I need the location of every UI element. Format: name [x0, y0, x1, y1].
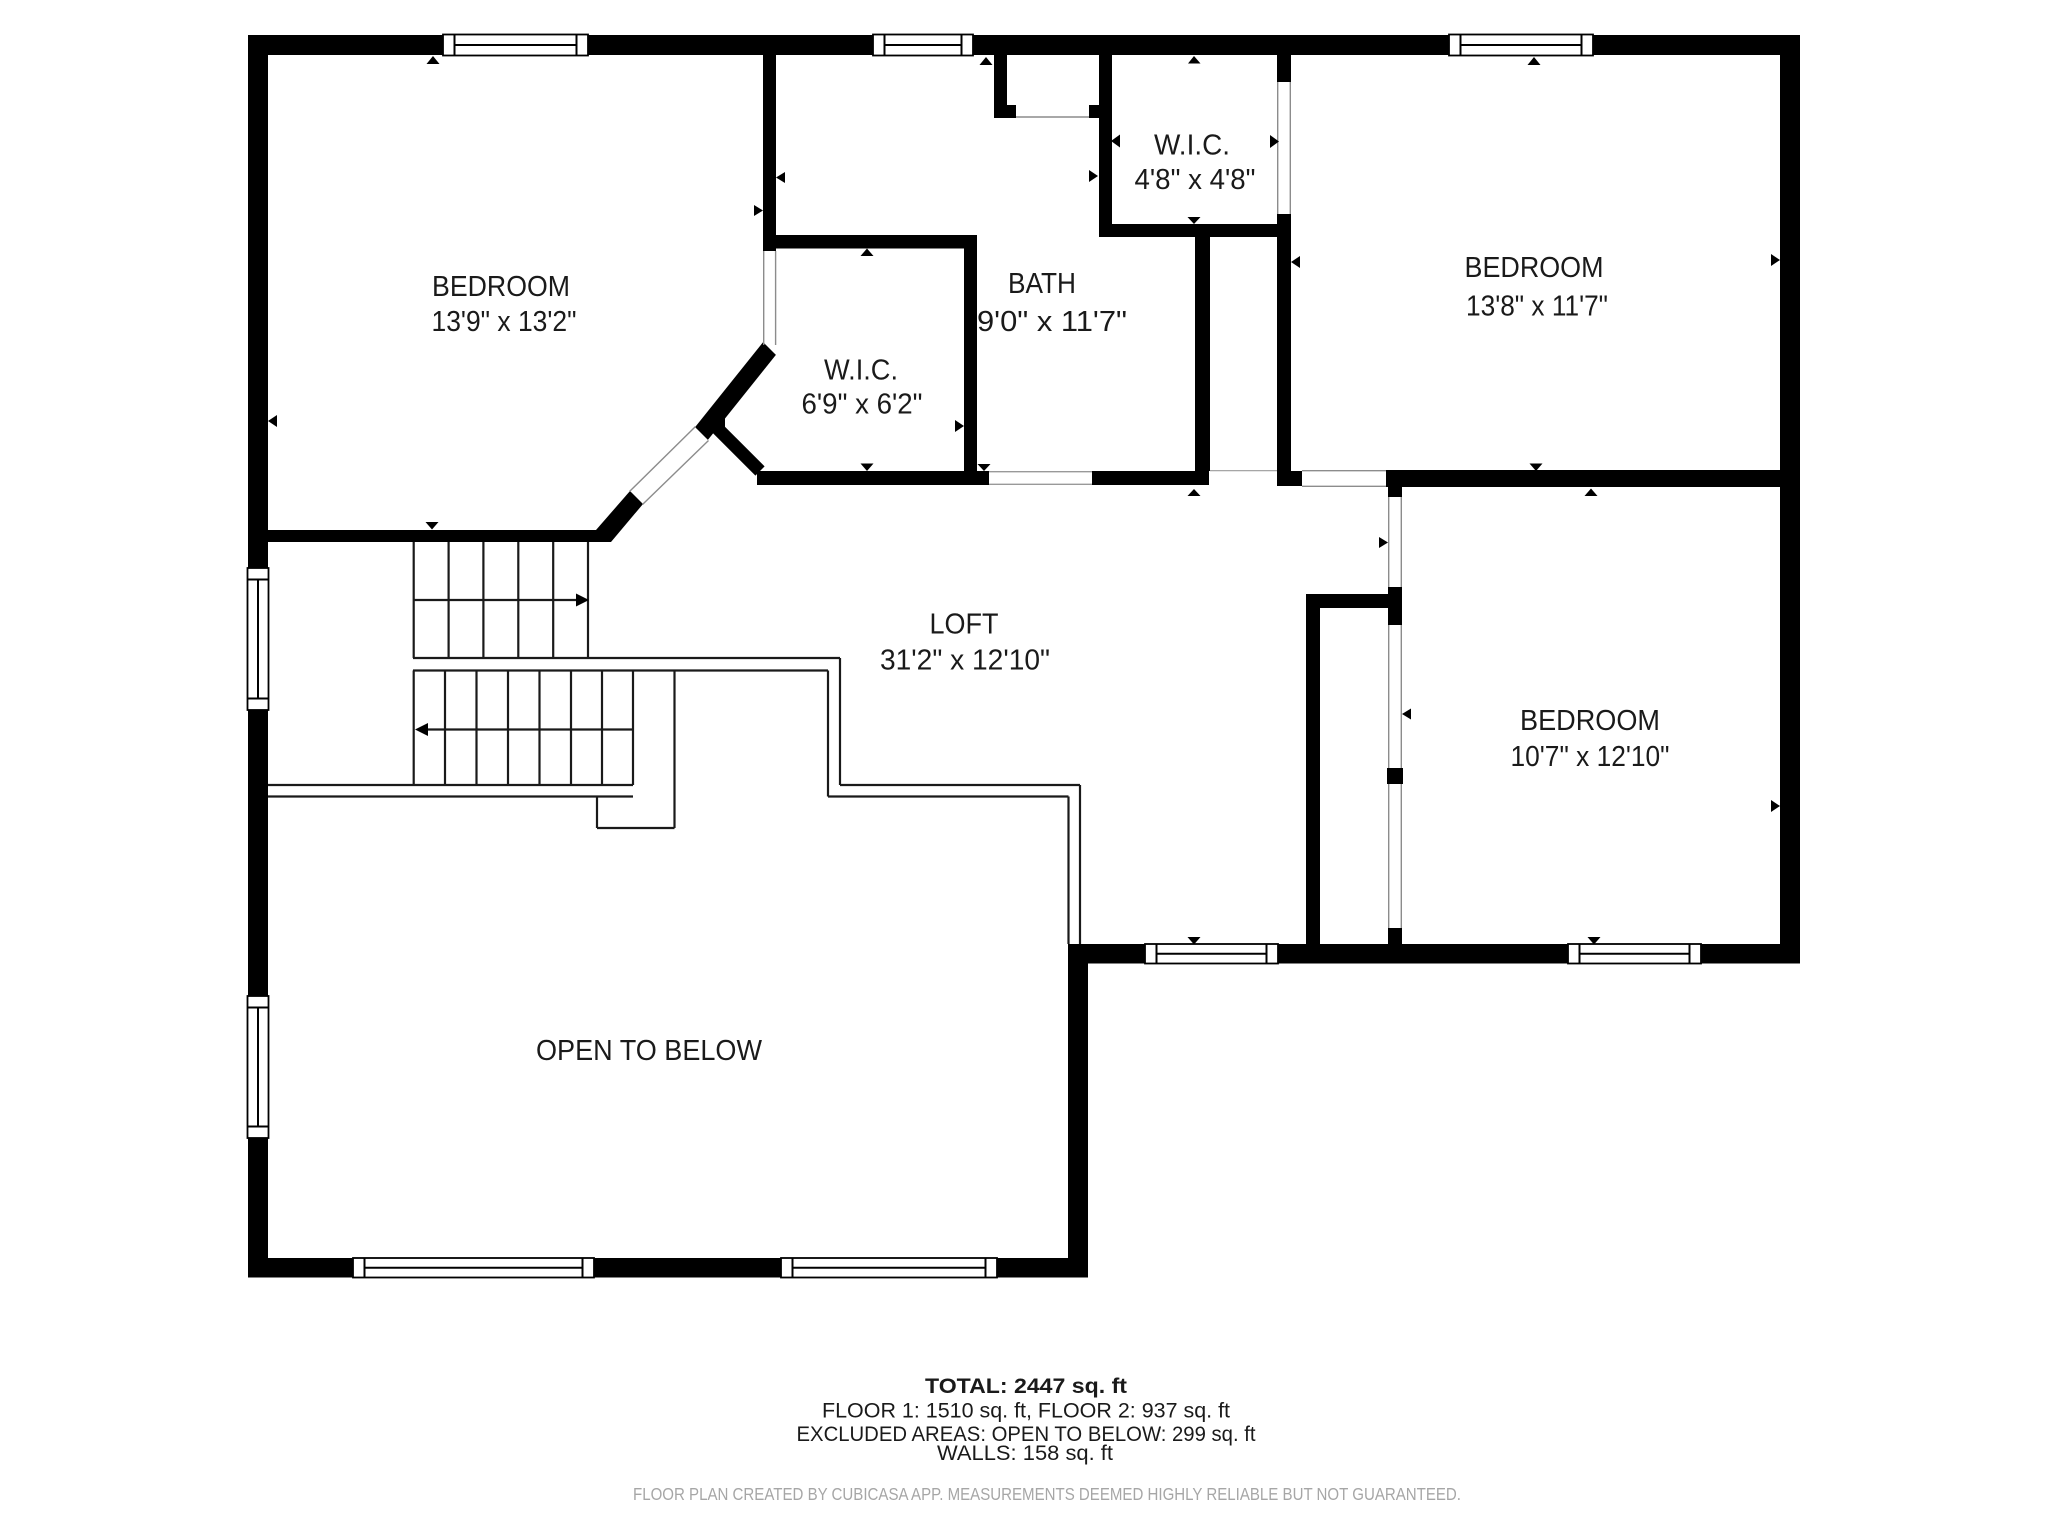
svg-text:OPEN TO BELOW: OPEN TO BELOW	[536, 1035, 763, 1067]
svg-text:TOTAL: 2447 sq. ft: TOTAL: 2447 sq. ft	[925, 1374, 1127, 1398]
svg-text:BEDROOM: BEDROOM	[432, 271, 570, 303]
svg-text:BEDROOM: BEDROOM	[1465, 252, 1604, 284]
svg-text:4'8" x 4'8": 4'8" x 4'8"	[1135, 164, 1256, 196]
svg-text:9'0" x 11'7": 9'0" x 11'7"	[977, 306, 1127, 338]
svg-text:BEDROOM: BEDROOM	[1520, 705, 1660, 737]
svg-text:LOFT: LOFT	[930, 609, 999, 641]
svg-text:BATH: BATH	[1008, 268, 1076, 300]
svg-text:FLOOR PLAN CREATED BY CUBICASA: FLOOR PLAN CREATED BY CUBICASA APP. MEAS…	[633, 1484, 1461, 1504]
svg-text:10'7" x 12'10": 10'7" x 12'10"	[1511, 741, 1670, 773]
svg-text:6'9" x 6'2": 6'9" x 6'2"	[802, 389, 923, 421]
svg-text:W.I.C.: W.I.C.	[1154, 130, 1230, 162]
svg-text:W.I.C.: W.I.C.	[824, 355, 898, 387]
svg-text:31'2" x 12'10": 31'2" x 12'10"	[880, 645, 1050, 677]
svg-text:13'9" x 13'2": 13'9" x 13'2"	[432, 306, 577, 338]
svg-text:WALLS: 158 sq. ft: WALLS: 158 sq. ft	[937, 1441, 1113, 1465]
svg-text:13'8" x 11'7": 13'8" x 11'7"	[1466, 291, 1608, 323]
svg-text:FLOOR 1: 1510 sq. ft, FLOOR 2:: FLOOR 1: 1510 sq. ft, FLOOR 2: 937 sq. f…	[822, 1399, 1230, 1423]
